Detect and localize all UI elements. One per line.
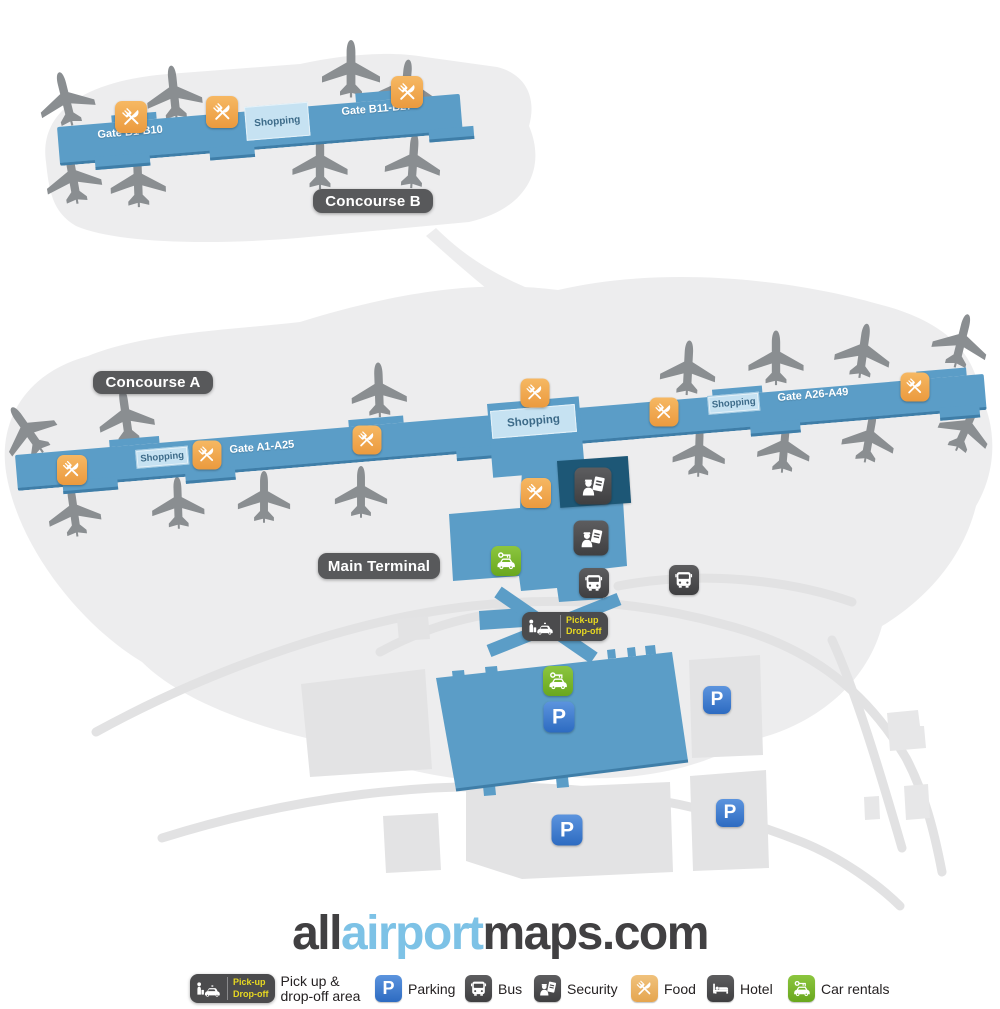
legend-pickup-badge: Pick-up Drop-off bbox=[190, 974, 275, 1003]
legend-food: Food bbox=[631, 975, 696, 1002]
dropoff-line: Drop-off bbox=[566, 626, 602, 637]
parking-icon: P bbox=[552, 815, 583, 846]
legend-parking-label: Parking bbox=[408, 981, 455, 997]
food-icon bbox=[521, 478, 551, 508]
parking-letter: P bbox=[552, 705, 566, 729]
site-logo: allairportmaps.com bbox=[0, 906, 1000, 961]
legend-security: Security bbox=[534, 975, 618, 1002]
legend-bus-label: Bus bbox=[498, 981, 522, 997]
legend-bus: Bus bbox=[465, 975, 522, 1002]
food-icon bbox=[521, 379, 550, 408]
logo-all: all bbox=[292, 907, 341, 960]
bus-icon bbox=[669, 565, 699, 595]
divider bbox=[227, 977, 228, 1000]
logo-maps: maps.com bbox=[482, 907, 707, 960]
food-icon bbox=[57, 455, 87, 485]
food-icon bbox=[193, 441, 222, 470]
legend-parking: P Parking bbox=[375, 975, 455, 1002]
parking-icon: P bbox=[544, 702, 575, 733]
legend-pickup-label-line1: Pick up & bbox=[281, 974, 361, 989]
dropoff-line: Drop-off bbox=[233, 989, 269, 1000]
legend-car-rentals-label: Car rentals bbox=[821, 981, 889, 997]
legend-food-label: Food bbox=[664, 981, 696, 997]
parking-letter: P bbox=[560, 818, 574, 842]
hotel-icon bbox=[707, 975, 734, 1002]
pickup-line: Pick-up bbox=[233, 977, 269, 988]
food-icon bbox=[353, 426, 382, 455]
logo-airport: airport bbox=[341, 907, 483, 960]
parking-icon: P bbox=[375, 975, 402, 1002]
food-icon bbox=[206, 96, 238, 128]
concourse-b-label: Concourse B bbox=[313, 189, 433, 213]
airport-map-page: Shopping Gate B1-B10 Gate B11-B27 Shoppi… bbox=[0, 0, 1000, 1009]
divider bbox=[560, 615, 561, 638]
legend-car-rentals: Car rentals bbox=[788, 975, 889, 1002]
car-rentals-icon bbox=[788, 975, 815, 1002]
food-icon bbox=[901, 373, 930, 402]
person-taxi-icon bbox=[196, 981, 222, 997]
legend-pickup-label-line2: drop-off area bbox=[281, 989, 361, 1004]
bus-icon bbox=[579, 568, 609, 598]
legend-hotel: Hotel bbox=[707, 975, 773, 1002]
food-icon bbox=[391, 76, 423, 108]
legend-hotel-label: Hotel bbox=[740, 981, 773, 997]
parking-icon: P bbox=[703, 686, 731, 714]
car-rentals-icon bbox=[491, 546, 521, 576]
food-icon bbox=[650, 398, 679, 427]
main-terminal-label: Main Terminal bbox=[318, 553, 440, 579]
concourse-a-label: Concourse A bbox=[93, 371, 213, 394]
security-icon bbox=[574, 521, 609, 556]
parking-letter: P bbox=[711, 689, 724, 711]
parking-letter: P bbox=[382, 978, 394, 999]
car-rentals-icon bbox=[543, 666, 573, 696]
legend-security-label: Security bbox=[567, 981, 618, 997]
bus-icon bbox=[465, 975, 492, 1002]
legend-pickup: Pick-up Drop-off Pick up & drop-off area bbox=[190, 974, 360, 1003]
pickup-dropoff-badge: Pick-up Drop-off bbox=[522, 612, 608, 641]
security-icon bbox=[534, 975, 561, 1002]
food-icon bbox=[115, 101, 147, 133]
person-taxi-icon bbox=[528, 618, 555, 635]
food-icon bbox=[631, 975, 658, 1002]
concourse-b-shopping: Shopping bbox=[244, 102, 311, 141]
parking-letter: P bbox=[724, 802, 737, 824]
parking-icon: P bbox=[716, 799, 744, 827]
pickup-line: Pick-up bbox=[566, 615, 602, 626]
security-icon bbox=[575, 468, 612, 505]
